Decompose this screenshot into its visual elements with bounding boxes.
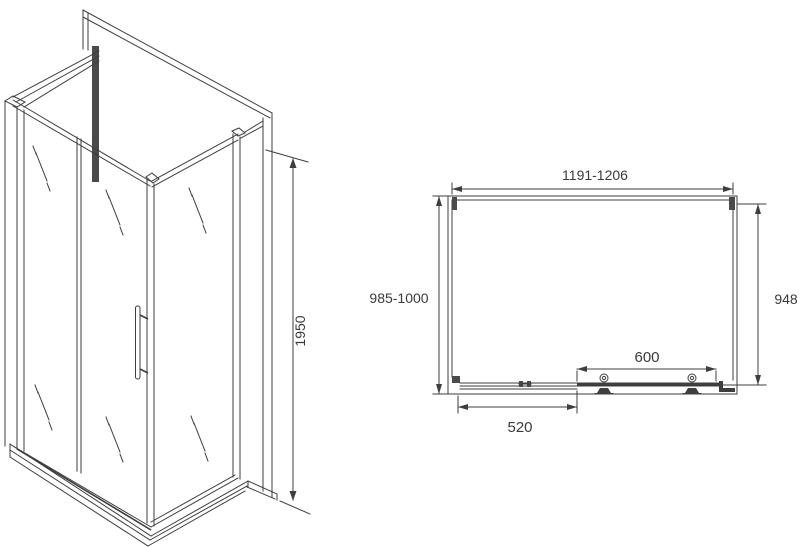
right-side-panel xyxy=(151,121,263,527)
fixed-width-label: 520 xyxy=(507,419,532,436)
height-dimension: 1950 xyxy=(266,150,310,514)
door-width-label: 600 xyxy=(634,349,659,366)
iso-view: 1950 xyxy=(5,10,310,546)
right-depth-label: 948 xyxy=(774,291,798,307)
left-depth-dimension: 985-1000 xyxy=(369,196,448,394)
left-depth-label: 985-1000 xyxy=(369,290,428,306)
sliding-door xyxy=(577,374,735,394)
right-depth-dimension: 948 xyxy=(718,204,798,385)
shower-tray xyxy=(10,444,277,546)
width-label: 1191-1206 xyxy=(562,167,628,183)
fixed-panel xyxy=(452,376,577,389)
wall-profile-right xyxy=(729,197,735,210)
plan-view: 1191-1206 985-1000 948 600 xyxy=(369,167,797,436)
fixed-width-dimension: 520 xyxy=(458,391,577,436)
height-label: 1950 xyxy=(292,315,308,346)
wall-profile-post xyxy=(92,46,99,182)
glass-reflection-marks xyxy=(33,146,208,462)
shower-enclosure-technical-drawing: 1950 xyxy=(0,0,800,547)
left-side-panel xyxy=(5,51,99,451)
width-dimension: 1191-1206 xyxy=(452,167,733,194)
back-panel xyxy=(83,10,272,497)
door-handle xyxy=(136,306,149,379)
wall-profile-left xyxy=(452,197,457,210)
plan-outline xyxy=(448,196,737,394)
